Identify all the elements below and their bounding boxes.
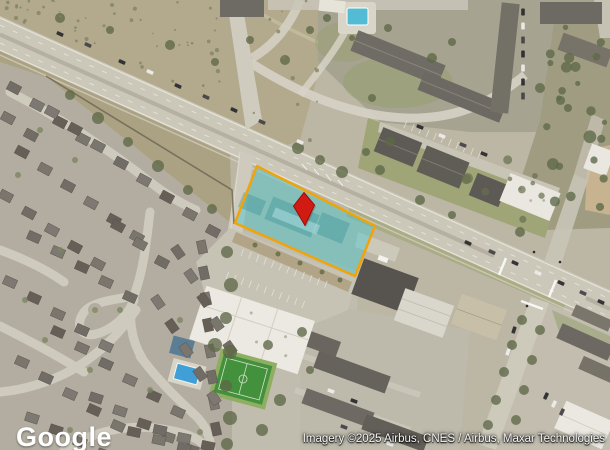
map-canvas[interactable]: Google Imagery ©2025 Airbus, CNES / Airb… bbox=[0, 0, 610, 450]
satellite-imagery bbox=[0, 0, 610, 450]
google-watermark[interactable]: Google bbox=[16, 422, 112, 450]
map-attribution: Imagery ©2025 Airbus, CNES / Airbus, Max… bbox=[303, 433, 605, 445]
